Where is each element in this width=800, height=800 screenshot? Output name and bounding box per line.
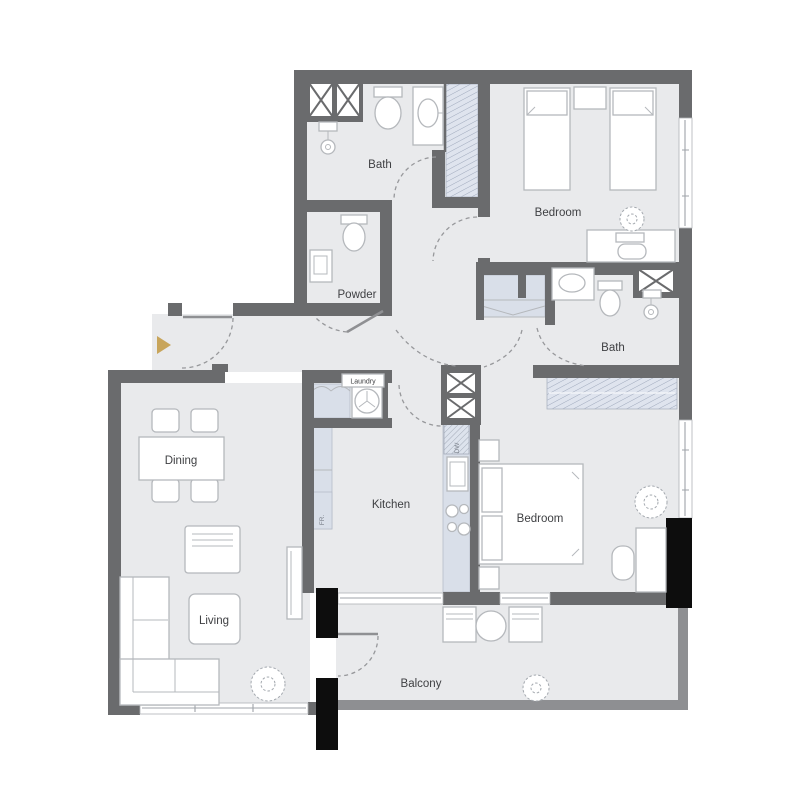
sink-icon <box>418 99 438 127</box>
label-bedroom-right: Bedroom <box>517 513 564 525</box>
dining-chair <box>152 409 179 432</box>
floor-plan-drawing: Bath Bedroom Powder Bath Laundry Dining … <box>0 0 800 800</box>
wall-living-kitchen-divider <box>302 373 314 593</box>
column <box>316 678 338 750</box>
toilet-tank <box>374 87 402 97</box>
floor-plan: Bath Bedroom Powder Bath Laundry Dining … <box>0 0 800 800</box>
toilet-tank <box>598 281 622 290</box>
label-laundry: Laundry <box>350 379 376 386</box>
shower-head-icon <box>643 290 661 298</box>
armchair <box>185 526 240 573</box>
sink-icon <box>559 274 585 292</box>
plant-inner <box>261 677 275 691</box>
column <box>316 588 338 638</box>
wall-entry-south <box>233 303 380 316</box>
label-fridge: FR. <box>319 515 326 526</box>
label-dishwasher: DW <box>454 442 461 454</box>
plant-inner <box>627 214 637 224</box>
nightstand <box>479 440 499 461</box>
tv-console <box>287 547 302 619</box>
wall-south-a <box>443 592 500 605</box>
wall-bedroom-top-west-b <box>478 258 490 275</box>
toilet-icon <box>375 97 401 129</box>
desk-chair <box>618 244 646 259</box>
plant-inner <box>531 683 541 693</box>
hall-closet <box>482 275 545 317</box>
label-powder: Powder <box>338 289 377 301</box>
dining-chair <box>152 479 179 502</box>
nightstand <box>479 567 499 589</box>
pillow <box>613 91 653 115</box>
dining-chair <box>191 409 218 432</box>
stove-burner-icon <box>460 505 469 514</box>
label-dining: Dining <box>165 455 198 467</box>
sofa-horizontal <box>120 659 219 705</box>
balcony-table <box>476 611 506 641</box>
stove-burner-icon <box>448 523 457 532</box>
label-bath-top: Bath <box>368 159 392 171</box>
desk-chair <box>612 546 634 580</box>
shower-drain-icon <box>321 140 335 154</box>
dining-chair <box>191 479 218 502</box>
wall-bath-right-south <box>533 365 679 378</box>
wall-dining-north <box>108 370 225 383</box>
plant-inner <box>644 495 658 509</box>
wall-bath-powder-divider <box>294 200 392 212</box>
wall-bedroom-top-west-a <box>478 70 490 217</box>
label-living: Living <box>199 615 229 627</box>
label-bath-right: Bath <box>601 342 625 354</box>
balcony-chair <box>509 607 542 642</box>
wall-door-stop <box>212 364 228 372</box>
wall-powder-east <box>380 200 392 316</box>
laundry-fixtures <box>352 384 382 418</box>
wall-right-mid <box>679 228 692 420</box>
wall-bath-top-east <box>432 150 445 205</box>
wall-left-lower <box>108 370 121 715</box>
pillow <box>527 91 567 115</box>
pillow <box>482 516 502 560</box>
wardrobe-top-bedroom <box>446 84 478 197</box>
toilet-icon <box>600 290 620 316</box>
column <box>666 518 692 608</box>
shower-drain-icon <box>644 305 658 319</box>
sink-cabinet <box>310 250 332 282</box>
balcony-wall-south <box>336 700 688 710</box>
balcony-chair <box>443 607 476 642</box>
label-bedroom-top: Bedroom <box>535 207 582 219</box>
nightstand <box>574 87 606 109</box>
monitor <box>616 233 644 242</box>
label-kitchen: Kitchen <box>372 499 410 511</box>
label-balcony: Balcony <box>401 678 442 690</box>
stove-burner-icon <box>458 523 470 535</box>
toilet-icon <box>343 223 365 251</box>
entry-hall-floor <box>152 314 312 372</box>
pillow <box>482 468 502 512</box>
desk <box>636 528 666 592</box>
stove-burner-icon <box>446 505 458 517</box>
shower-head-icon <box>319 122 337 131</box>
wall-right-upper <box>679 70 692 120</box>
wall-entry-jamb <box>168 303 182 316</box>
laundry-cabinet <box>312 384 350 418</box>
balcony-wall-east <box>678 604 688 710</box>
